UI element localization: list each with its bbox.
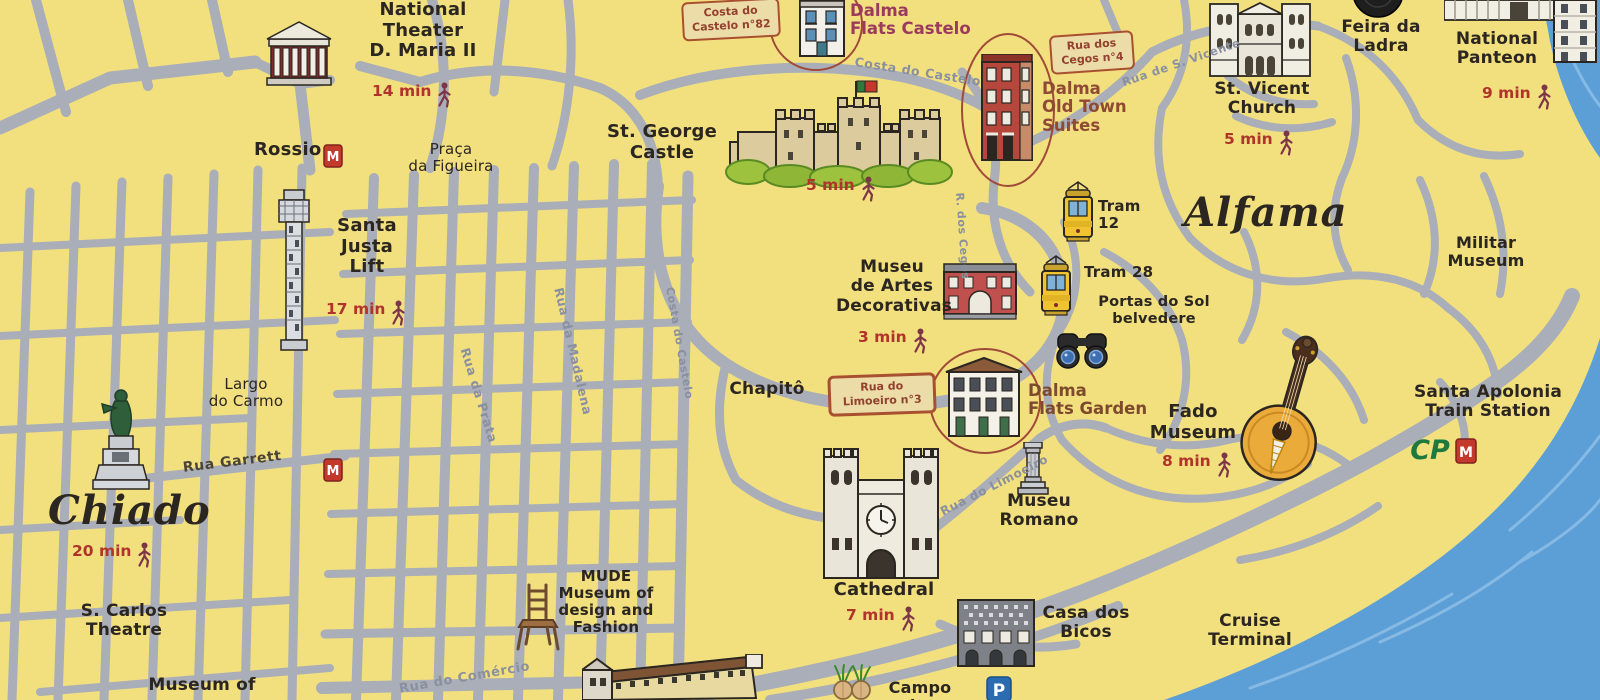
national-panteon-walk-time: 9 min (1482, 84, 1553, 111)
cp-rail-icon: CP (1406, 434, 1454, 466)
walking-person-icon (1536, 84, 1553, 111)
svg-text:CP: CP (1410, 435, 1450, 466)
national-theater-walk-time: 14 min (372, 82, 453, 109)
riverside-palace-illustration (582, 654, 764, 700)
lisbon-illustrated-map: M M M CP P Costa do Castelo n°82 Rua dos… (0, 0, 1600, 700)
santa-justa-lift-illustration (271, 188, 317, 354)
walking-person-icon (436, 82, 453, 109)
portuguese-guitar-illustration (1236, 334, 1340, 486)
museum-of-label: Museum of (146, 676, 258, 695)
cathedral-walk-time: 7 min (846, 606, 917, 633)
address-box-rua-limoeiro: Rua do Limoeiro n°3 (827, 372, 936, 416)
st-george-castle-walk-time: 5 min (806, 176, 877, 203)
walking-person-icon (136, 542, 153, 569)
svg-text:M: M (327, 150, 340, 165)
binoculars-icon (1054, 330, 1110, 370)
parking-icon: P (986, 676, 1012, 700)
militar-museum-label: Militar Museum (1436, 234, 1536, 270)
dalma-flats-castelo-label: Dalma Flats Castelo (850, 2, 971, 39)
dalma-old-town-suites-label: Dalma Old Town Suites (1042, 80, 1127, 135)
campo-das-label: Campo das (870, 679, 970, 700)
walking-person-icon (390, 300, 407, 327)
praca-da-figueira-label: Praça da Figueira (396, 141, 506, 175)
portas-do-sol-label: Portas do Sol belvedere (1092, 294, 1216, 327)
museu-artes-decorativas-label: Museu de Artes Decorativas (836, 258, 948, 316)
museu-romano-label: Museu Romano (992, 492, 1086, 531)
dalma-garden-building (942, 354, 1026, 442)
chiado-walk-time: 20 min (72, 542, 153, 569)
tram-12-icon (1060, 180, 1096, 244)
st-vicent-church-label: St. Vicent Church (1206, 80, 1318, 119)
address-box-rua-cegos: Rua dos Cegos n°4 (1049, 30, 1135, 74)
feira-da-ladra-label: Feira da Ladra (1334, 18, 1428, 57)
st-vicent-walk-time: 5 min (1224, 130, 1295, 157)
walking-person-icon (1278, 130, 1295, 157)
cathedral-illustration (820, 442, 942, 584)
svg-text:M: M (327, 464, 340, 479)
metro-icon: M (323, 144, 343, 168)
largo-do-carmo-label: Largo do Carmo (200, 376, 292, 410)
tram-28-label: Tram 28 (1084, 264, 1153, 281)
address-box-costa-castelo: Costa do Castelo n°82 (681, 0, 781, 41)
santa-apolonia-label: Santa Apolonia Train Station (1400, 383, 1576, 422)
dalma-old-town-building (976, 54, 1040, 164)
mude-label: MUDE Museum of design and Fashion (550, 568, 662, 636)
museu-artes-walk-time: 3 min (858, 328, 929, 355)
fado-museum-label: Fado Museum (1146, 402, 1240, 443)
walking-person-icon (912, 328, 929, 355)
svg-text:M: M (1459, 445, 1473, 461)
tram-12-label: Tram 12 (1098, 198, 1158, 232)
walking-person-icon (900, 606, 917, 633)
museu-artes-building (942, 260, 1020, 324)
national-theater-label: National Theater D. Maria II (358, 0, 488, 62)
alfama-label: Alfama (1184, 190, 1348, 236)
national-panteon-label: National Panteon (1440, 30, 1554, 69)
cruise-terminal-label: Cruise Terminal (1198, 612, 1302, 651)
svg-text:P: P (993, 681, 1005, 700)
s-carlos-theatre-label: S. Carlos Theatre (68, 602, 180, 641)
fado-museum-walk-time: 8 min (1162, 452, 1233, 479)
casa-dos-bicos-illustration (956, 598, 1038, 670)
chapito-label: Chapitô (724, 380, 810, 399)
metro-icon: M (323, 458, 343, 482)
dalma-flats-garden-label: Dalma Flats Garden (1028, 382, 1147, 419)
santa-justa-lift-label: Santa Justa Lift (322, 216, 412, 278)
national-theater-illustration (265, 20, 333, 88)
corner-building-illustration (1552, 0, 1600, 66)
vinyl-record-icon (1350, 0, 1406, 18)
st-george-castle-label: St. George Castle (606, 122, 718, 163)
chiado-statue-illustration (90, 386, 152, 494)
santa-justa-walk-time: 17 min (326, 300, 407, 327)
cathedral-label: Cathedral (828, 580, 940, 601)
walking-person-icon (860, 176, 877, 203)
dalma-flats-castelo-building (796, 0, 848, 58)
tram-28-icon (1038, 254, 1074, 318)
st-george-castle-illustration (718, 76, 960, 188)
metro-icon: M (1455, 438, 1477, 464)
rossio-label: Rossio (254, 140, 321, 161)
walking-person-icon (1216, 452, 1233, 479)
casa-dos-bicos-label: Casa dos Bicos (1034, 604, 1138, 643)
chiado-label: Chiado (48, 488, 211, 534)
